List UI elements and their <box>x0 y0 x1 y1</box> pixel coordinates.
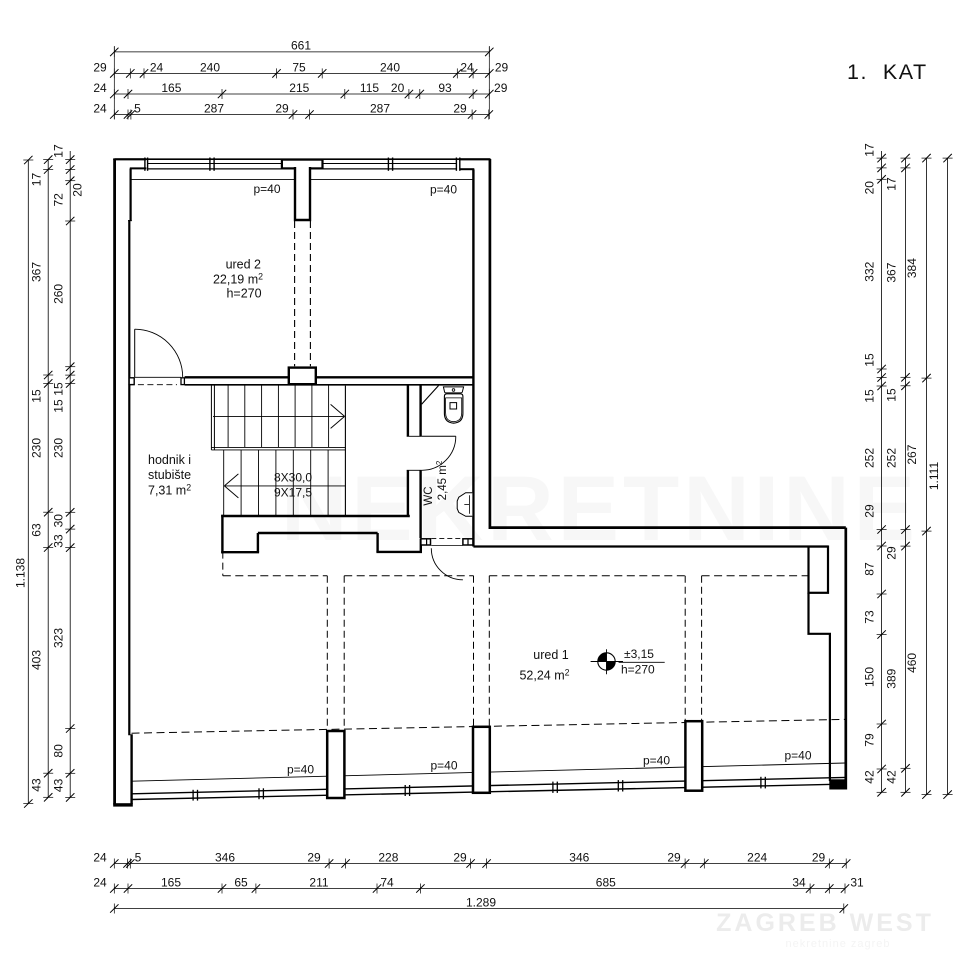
svg-text:33: 33 <box>52 534 66 548</box>
svg-text:79: 79 <box>863 733 877 747</box>
svg-text:287: 287 <box>204 102 224 116</box>
svg-text:hodnik i: hodnik i <box>148 453 191 467</box>
svg-text:20: 20 <box>391 81 405 95</box>
svg-text:29: 29 <box>453 851 467 865</box>
svg-text:±3,15: ±3,15 <box>624 647 654 661</box>
svg-text:2,45 m2: 2,45 m2 <box>435 460 449 500</box>
svg-text:15: 15 <box>863 389 877 403</box>
svg-text:24: 24 <box>150 61 164 75</box>
svg-text:5: 5 <box>134 102 141 116</box>
svg-text:323: 323 <box>52 628 66 648</box>
svg-text:1.138: 1.138 <box>14 558 28 588</box>
svg-text:367: 367 <box>30 262 44 282</box>
svg-text:ured 2: ured 2 <box>226 258 261 272</box>
svg-text:29: 29 <box>863 504 877 518</box>
svg-text:42: 42 <box>885 770 899 784</box>
svg-text:1.289: 1.289 <box>466 896 496 910</box>
svg-text:29: 29 <box>275 102 289 116</box>
svg-text:31: 31 <box>850 876 864 890</box>
svg-text:29: 29 <box>667 851 681 865</box>
svg-text:267: 267 <box>905 444 919 464</box>
svg-text:20: 20 <box>863 181 877 195</box>
svg-text:1.111: 1.111 <box>927 462 941 491</box>
svg-text:80: 80 <box>52 744 66 758</box>
svg-text:29: 29 <box>453 102 467 116</box>
svg-text:24: 24 <box>93 102 107 116</box>
svg-text:65: 65 <box>234 876 248 890</box>
svg-text:h=270: h=270 <box>226 287 261 301</box>
svg-text:34: 34 <box>792 876 806 890</box>
svg-text:384: 384 <box>905 258 919 278</box>
svg-text:22,19 m2: 22,19 m2 <box>213 271 263 286</box>
svg-text:228: 228 <box>378 851 398 865</box>
svg-text:17: 17 <box>863 143 877 157</box>
svg-text:165: 165 <box>161 81 181 95</box>
svg-text:150: 150 <box>863 667 877 687</box>
svg-text:24: 24 <box>93 876 107 890</box>
svg-text:h=270: h=270 <box>621 663 655 677</box>
svg-text:stubište: stubište <box>148 468 191 482</box>
svg-text:115: 115 <box>360 81 379 95</box>
svg-text:p=40: p=40 <box>287 763 314 777</box>
svg-text:43: 43 <box>52 778 66 792</box>
svg-text:43: 43 <box>30 778 44 792</box>
svg-text:17: 17 <box>885 177 899 191</box>
svg-text:30: 30 <box>52 514 66 528</box>
svg-text:nekretnine zagreb: nekretnine zagreb <box>785 938 890 950</box>
svg-text:42: 42 <box>863 770 877 784</box>
svg-text:p=40: p=40 <box>253 182 280 196</box>
svg-text:211: 211 <box>309 876 328 890</box>
svg-text:661: 661 <box>291 39 311 53</box>
svg-text:24: 24 <box>460 61 474 75</box>
svg-text:29: 29 <box>93 61 107 75</box>
svg-text:24: 24 <box>93 851 107 865</box>
svg-text:5: 5 <box>135 851 142 865</box>
svg-text:17: 17 <box>52 144 66 158</box>
svg-text:WC: WC <box>423 486 435 505</box>
svg-text:p=40: p=40 <box>430 759 457 773</box>
svg-text:287: 287 <box>370 102 390 116</box>
svg-text:389: 389 <box>885 668 899 688</box>
svg-text:63: 63 <box>30 523 44 537</box>
svg-text:8X30,0: 8X30,0 <box>274 471 312 485</box>
svg-text:p=40: p=40 <box>430 183 457 197</box>
svg-text:p=40: p=40 <box>784 749 811 763</box>
svg-text:24: 24 <box>93 81 107 95</box>
svg-text:p=40: p=40 <box>643 754 670 768</box>
svg-text:685: 685 <box>596 876 616 890</box>
svg-text:460: 460 <box>905 653 919 673</box>
svg-text:240: 240 <box>380 61 400 75</box>
svg-text:260: 260 <box>52 284 66 304</box>
svg-text:403: 403 <box>30 650 44 670</box>
svg-text:74: 74 <box>380 876 394 890</box>
svg-text:29: 29 <box>494 81 508 95</box>
svg-text:230: 230 <box>30 438 44 458</box>
svg-text:15: 15 <box>30 389 44 403</box>
svg-text:72: 72 <box>52 193 66 207</box>
svg-text:87: 87 <box>863 562 877 576</box>
svg-text:15: 15 <box>52 399 66 413</box>
svg-text:29: 29 <box>812 851 826 865</box>
svg-text:29: 29 <box>307 851 321 865</box>
svg-text:7,31 m2: 7,31 m2 <box>148 483 191 498</box>
svg-text:17: 17 <box>30 173 44 187</box>
svg-text:332: 332 <box>863 261 877 281</box>
svg-text:9X17,5: 9X17,5 <box>274 486 312 500</box>
svg-text:15: 15 <box>863 353 877 367</box>
svg-text:367: 367 <box>885 262 899 282</box>
svg-text:165: 165 <box>161 876 181 890</box>
svg-text:240: 240 <box>200 61 220 75</box>
svg-text:215: 215 <box>289 81 309 95</box>
svg-text:346: 346 <box>569 851 589 865</box>
svg-text:93: 93 <box>438 81 452 95</box>
svg-text:15: 15 <box>52 382 66 396</box>
svg-text:252: 252 <box>863 448 877 468</box>
svg-text:52,24 m2: 52,24 m2 <box>519 667 569 682</box>
svg-text:73: 73 <box>863 610 877 624</box>
svg-text:230: 230 <box>52 438 66 458</box>
svg-text:29: 29 <box>495 61 509 75</box>
svg-text:15: 15 <box>885 388 899 402</box>
svg-text:ured 1: ured 1 <box>533 648 568 662</box>
svg-text:ZAGREB WEST: ZAGREB WEST <box>716 909 934 937</box>
svg-text:1. KAT: 1. KAT <box>847 60 928 84</box>
svg-text:29: 29 <box>885 546 899 560</box>
svg-text:252: 252 <box>885 448 899 468</box>
svg-text:75: 75 <box>292 61 306 75</box>
svg-text:20: 20 <box>71 183 85 197</box>
svg-text:224: 224 <box>747 851 767 865</box>
svg-text:346: 346 <box>215 851 235 865</box>
